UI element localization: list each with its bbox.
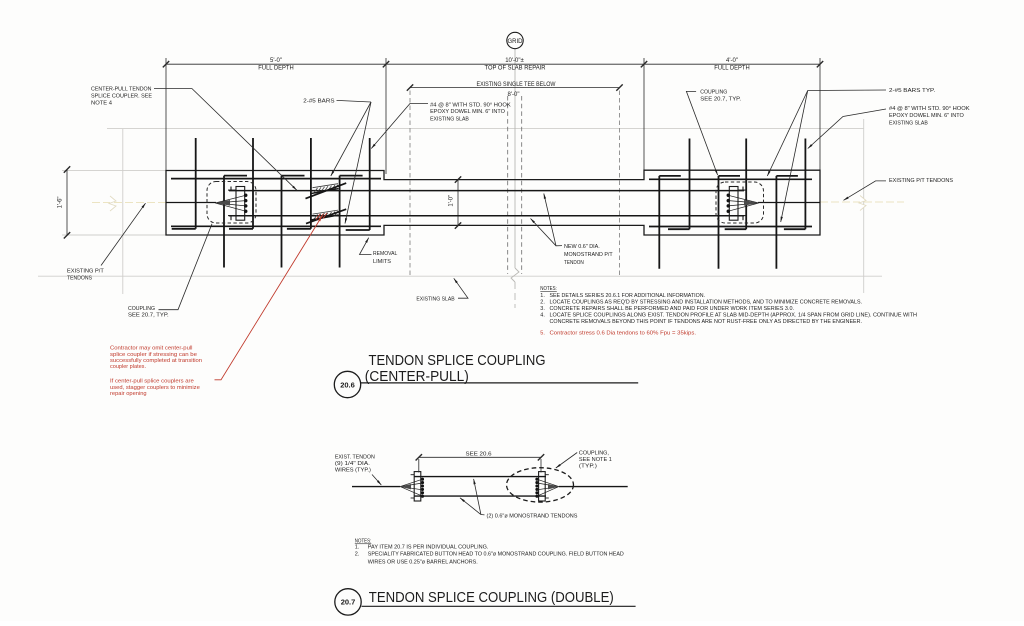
svg-text:10'-0"±: 10'-0"±	[505, 58, 524, 64]
svg-text:TENDON SPLICE COUPLING: TENDON SPLICE COUPLING	[369, 353, 546, 369]
svg-text:8'-0": 8'-0"	[508, 92, 520, 98]
svg-text:4.: 4.	[540, 313, 545, 319]
svg-text:LOCATE SPLICE COUPLINGS ALONG: LOCATE SPLICE COUPLINGS ALONG EXIST. TEN…	[550, 313, 918, 319]
svg-text:FULL DEPTH: FULL DEPTH	[258, 66, 293, 72]
svg-text:SPECIALITY FABRICATED BUTTON H: SPECIALITY FABRICATED BUTTON HEAD TO 0.6…	[368, 551, 624, 557]
svg-text:TENDONS: TENDONS	[67, 276, 92, 282]
svg-text:SEE 20.6: SEE 20.6	[466, 452, 492, 458]
svg-text:EPOXY DOWEL MIN. 6" INTO: EPOXY DOWEL MIN. 6" INTO	[889, 113, 964, 119]
svg-text:(2) 0.6"ø MONOSTRAND TENDONS: (2) 0.6"ø MONOSTRAND TENDONS	[487, 514, 578, 520]
svg-text:SEE DETAILS SERIES 20.6.1 FOR: SEE DETAILS SERIES 20.6.1 FOR ADDITIONAL…	[550, 293, 706, 299]
svg-text:SEE NOTE 1: SEE NOTE 1	[579, 457, 612, 463]
svg-text:GRID: GRID	[508, 39, 524, 45]
svg-text:20.7: 20.7	[341, 598, 356, 607]
svg-text:CONCRETE REPAIRS SHALL BE PERF: CONCRETE REPAIRS SHALL BE PERFORMED AND …	[550, 306, 795, 312]
svg-text:COUPLING: COUPLING	[128, 306, 155, 312]
svg-text:1'-6": 1'-6"	[58, 196, 64, 208]
svg-text:SPLICE COUPLER. SEE: SPLICE COUPLER. SEE	[91, 94, 152, 100]
svg-text:3.: 3.	[540, 306, 545, 312]
svg-text:EXISTING SLAB: EXISTING SLAB	[430, 116, 469, 122]
svg-text:#4 @ 8" WITH STD. 90° HOOK: #4 @ 8" WITH STD. 90° HOOK	[430, 102, 511, 108]
svg-text:TENDON SPLICE COUPLING (DOUBLE: TENDON SPLICE COUPLING (DOUBLE)	[369, 590, 614, 606]
svg-text:EXISTING SLAB: EXISTING SLAB	[416, 296, 454, 302]
svg-text:EXISTING SINGLE TEE BELOW: EXISTING SINGLE TEE BELOW	[477, 82, 556, 88]
svg-text:EXISTING P/T TENDONS: EXISTING P/T TENDONS	[889, 178, 953, 184]
svg-text:CENTER-PULL TENDON: CENTER-PULL TENDON	[91, 87, 152, 93]
svg-text:(TYP.): (TYP.)	[579, 463, 597, 469]
svg-text:MONOSTRAND P/T: MONOSTRAND P/T	[564, 252, 613, 258]
svg-text:EPOXY DOWEL MIN. 6" INTO: EPOXY DOWEL MIN. 6" INTO	[430, 109, 505, 115]
svg-text:EXISTING P/T: EXISTING P/T	[67, 268, 104, 274]
svg-text:WIRES OR USE 0.25"ø BARREL ANC: WIRES OR USE 0.25"ø BARREL ANCHORS.	[368, 559, 478, 565]
svg-text:WIRES (TYP.): WIRES (TYP.)	[335, 467, 371, 473]
svg-text:NOTES:: NOTES:	[540, 286, 557, 292]
svg-text:1.: 1.	[540, 293, 545, 299]
svg-text:COUPLING,: COUPLING,	[579, 451, 609, 457]
svg-text:SEE 20.7, TYP.: SEE 20.7, TYP.	[128, 313, 169, 319]
svg-text:2-#5 BARS: 2-#5 BARS	[303, 99, 334, 105]
svg-text:Contractor may omit center-pul: Contractor may omit center-pull	[110, 345, 193, 351]
svg-text:EXISTING SLAB: EXISTING SLAB	[889, 121, 928, 127]
svg-text:EXIST. TENDON: EXIST. TENDON	[335, 455, 375, 461]
svg-text:NEW 0.6" DIA.: NEW 0.6" DIA.	[564, 244, 600, 250]
svg-text:2.: 2.	[540, 299, 545, 305]
svg-text:LOCATE COUPLINGS AS REQ'D BY S: LOCATE COUPLINGS AS REQ'D BY STRESSING A…	[550, 299, 863, 305]
svg-text:1.: 1.	[355, 544, 360, 550]
svg-text:TOP OF SLAB REPAIR: TOP OF SLAB REPAIR	[485, 66, 547, 72]
svg-text:#4 @ 8" WITH STD. 90° HOOK: #4 @ 8" WITH STD. 90° HOOK	[889, 106, 970, 112]
svg-text:FULL DEPTH: FULL DEPTH	[714, 66, 749, 72]
svg-text:(9) 1/4" DIA.: (9) 1/4" DIA.	[335, 461, 370, 467]
svg-text:Contractor stress 0.6 Dia tend: Contractor stress 0.6 Dia tendons to 60%…	[550, 331, 697, 337]
svg-text:CONCRETE REMOVALS BEYOND THIS: CONCRETE REMOVALS BEYOND THIS POINT IF T…	[550, 319, 863, 325]
svg-text:LIMITS: LIMITS	[373, 259, 391, 265]
svg-text:coupler plates.: coupler plates.	[110, 364, 146, 370]
svg-text:5.: 5.	[540, 331, 545, 337]
svg-text:NOTE 4: NOTE 4	[91, 101, 113, 107]
svg-text:2.: 2.	[355, 551, 360, 557]
svg-text:PAY ITEM 20.7 IS PER INDIVIDUA: PAY ITEM 20.7 IS PER INDIVIDUAL COUPLING…	[368, 544, 489, 550]
svg-text:COUPLING: COUPLING	[700, 90, 727, 96]
svg-text:20.6: 20.6	[340, 380, 355, 389]
svg-text:REMOVAL: REMOVAL	[373, 251, 398, 257]
svg-text:SEE 20.7, TYP.: SEE 20.7, TYP.	[700, 97, 741, 103]
svg-text:5'-0": 5'-0"	[270, 58, 282, 64]
svg-text:2-#5 BARS TYP.: 2-#5 BARS TYP.	[889, 88, 936, 94]
svg-text:repair opening: repair opening	[110, 391, 147, 397]
svg-text:1'-0": 1'-0"	[449, 195, 455, 207]
svg-text:If center-pull splice couplers: If center-pull splice couplers are	[110, 378, 194, 384]
svg-text:TENDON: TENDON	[564, 260, 584, 266]
svg-text:4'-0": 4'-0"	[726, 58, 738, 64]
